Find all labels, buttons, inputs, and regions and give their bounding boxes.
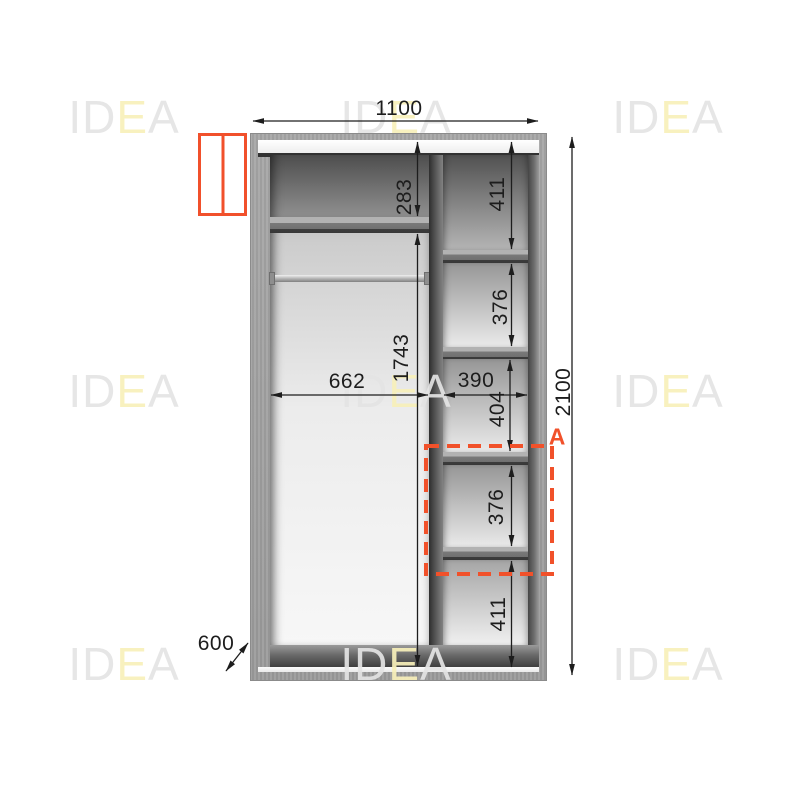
- door-schematic-icon: [198, 133, 247, 216]
- dimension-right-cell-3: 404: [486, 391, 510, 428]
- wardrobe-dimension-drawing: IDEA IDEA IDEA IDEA IDEA IDEA IDEA IDEA …: [0, 0, 800, 800]
- dimension-overall-width: 1100: [375, 97, 422, 121]
- dimension-right-cell-4: 376: [485, 489, 509, 526]
- dimension-left-shelf-drop: 283: [393, 179, 417, 216]
- dimension-right-cell-5: 411: [487, 597, 511, 632]
- door-divider-line: [221, 136, 224, 213]
- detail-a-label: A: [549, 424, 566, 451]
- dimension-depth: 600: [198, 632, 235, 656]
- dimension-right-width: 390: [458, 369, 495, 393]
- dimension-left-height: 1743: [390, 334, 414, 383]
- dimension-right-cell-2: 376: [489, 289, 513, 326]
- dimension-left-width: 662: [329, 370, 366, 394]
- dimension-overall-height: 2100: [552, 368, 576, 417]
- dimension-right-cell-1: 411: [486, 177, 510, 212]
